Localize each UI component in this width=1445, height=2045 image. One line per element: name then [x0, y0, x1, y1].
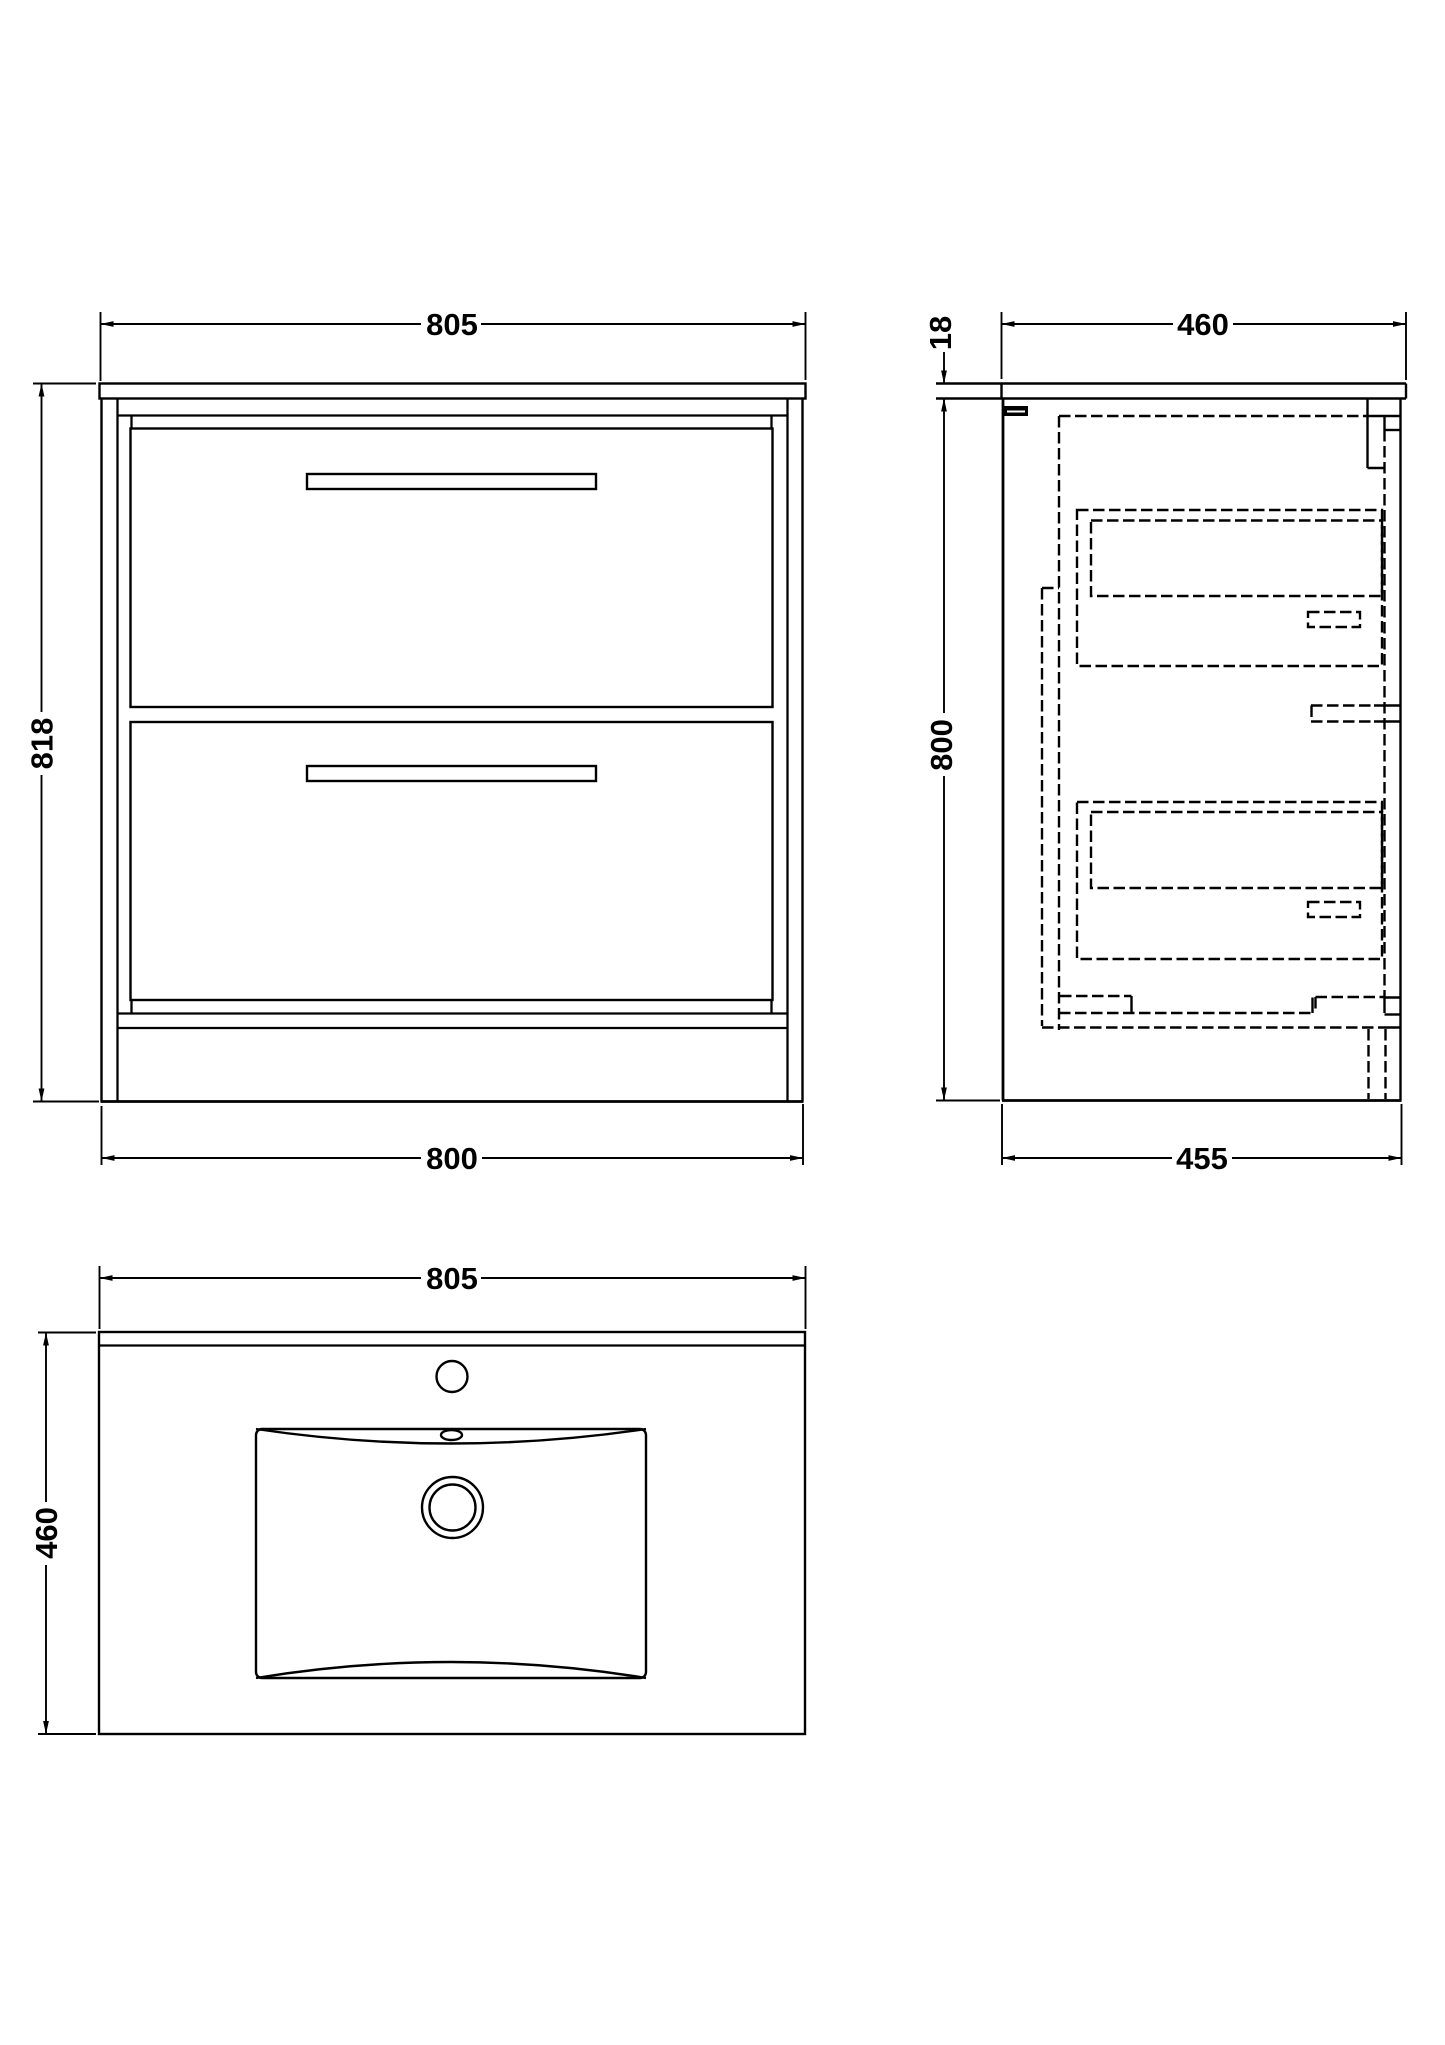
svg-text:805: 805: [426, 307, 478, 342]
svg-text:818: 818: [25, 718, 60, 770]
svg-text:460: 460: [1177, 307, 1229, 342]
svg-text:805: 805: [426, 1261, 478, 1296]
svg-text:460: 460: [29, 1507, 64, 1559]
svg-text:455: 455: [1176, 1141, 1228, 1176]
svg-text:18: 18: [923, 316, 958, 350]
svg-text:800: 800: [924, 719, 959, 771]
svg-text:800: 800: [426, 1141, 478, 1176]
